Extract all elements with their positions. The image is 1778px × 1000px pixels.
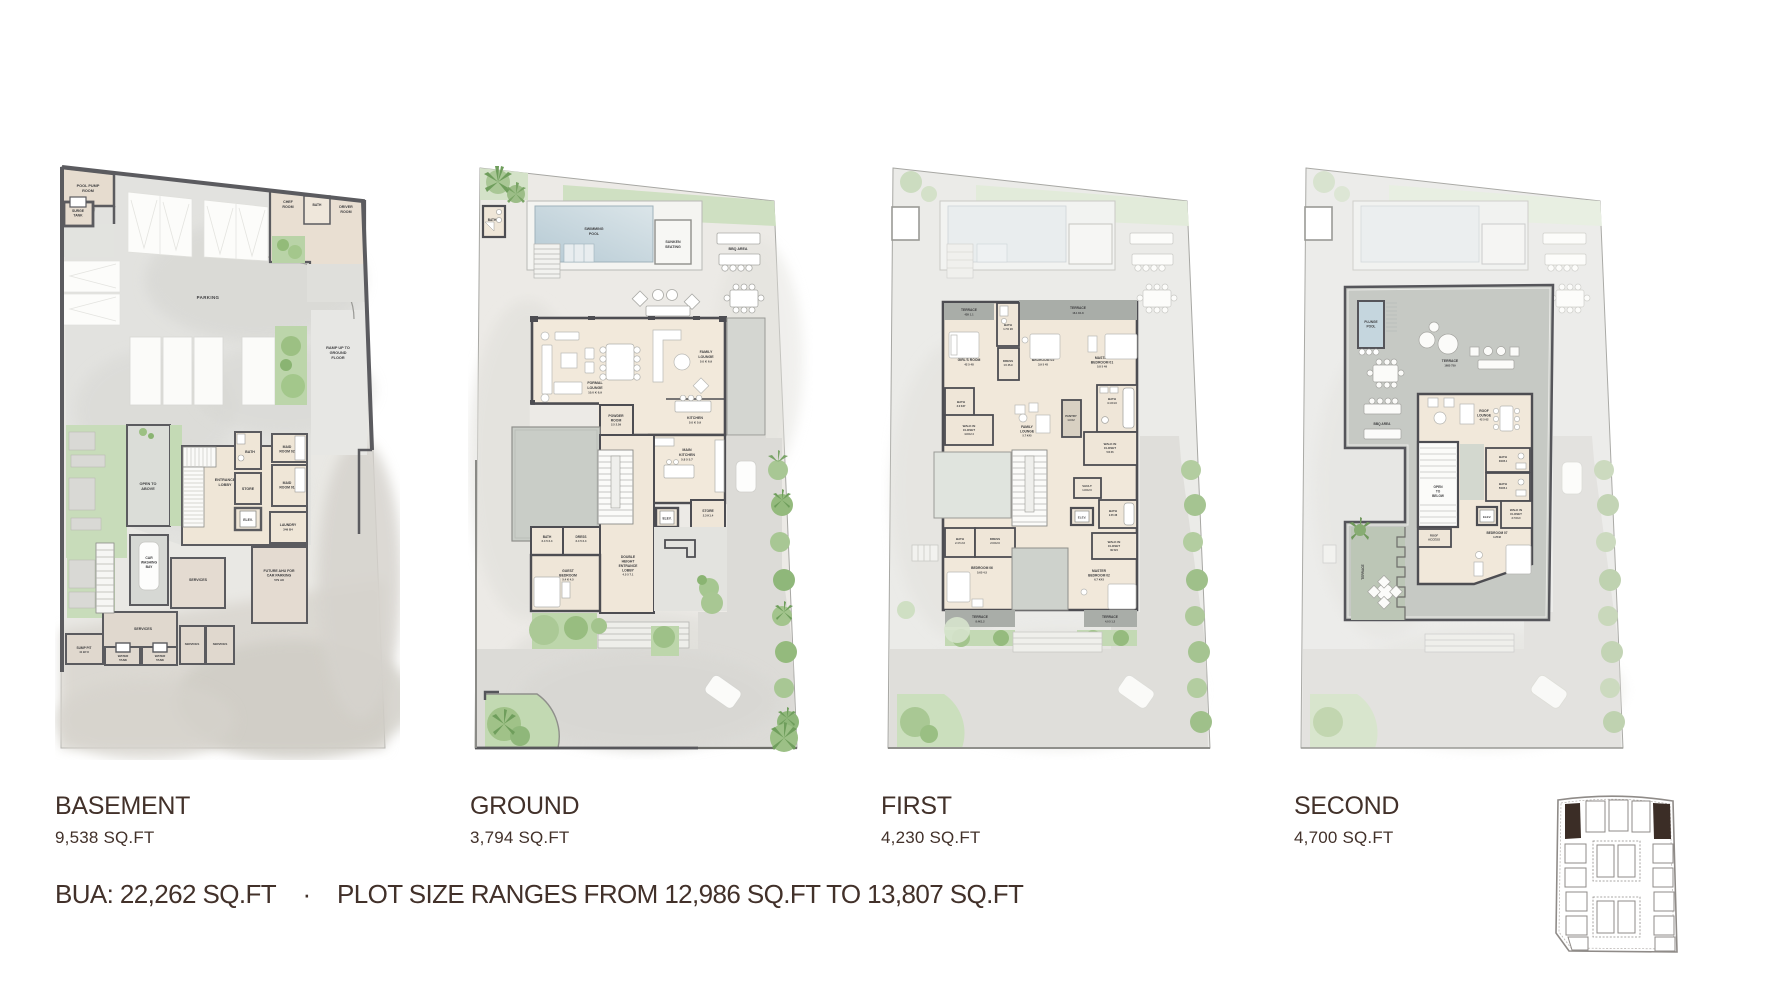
svg-text:CAR PARKING: CAR PARKING [267,574,292,578]
svg-text:5/185.1: 5/185.1 [1499,487,1508,490]
svg-text:ROOM: ROOM [82,189,94,193]
svg-text:ACCESS: ACCESS [1428,538,1440,542]
svg-text:42K 1.1: 42K 1.1 [964,313,974,317]
svg-text:KITCHEN: KITCHEN [687,416,703,420]
svg-text:1.5 45.9: 1.5 45.9 [1003,364,1013,367]
svg-text:SERVICES: SERVICES [134,627,153,631]
svg-text:TERRACE: TERRACE [1070,306,1087,310]
svg-text:RAMP UP TO: RAMP UP TO [326,346,350,350]
svg-text:GROUND: GROUND [330,351,347,355]
svg-text:SERVICES: SERVICES [185,642,200,646]
svg-text:SURGE: SURGE [72,209,85,213]
svg-text:5.4 K 4.5: 5.4 K 4.5 [562,578,574,582]
svg-text:BATH: BATH [245,450,255,454]
svg-text:POOL: POOL [1366,325,1375,329]
svg-text:BATH: BATH [1499,455,1507,459]
svg-text:LOUNGE: LOUNGE [1020,430,1035,434]
svg-text:41 B7.8: 41 B7.8 [79,650,89,654]
svg-text:ENTRANCE: ENTRANCE [619,564,639,568]
svg-text:5.7 K45: 5.7 K45 [1022,434,1032,438]
svg-text:2.4 5 2.4: 2.4 5 2.4 [542,539,553,543]
svg-text:BAY: BAY [146,565,154,569]
svg-text:CLOSET: CLOSET [1104,446,1116,450]
svg-text:5.65 4.5: 5.65 4.5 [977,571,988,575]
svg-text:BATH: BATH [313,203,323,207]
svg-text:3.1 K4.6: 3.1 K4.6 [1107,402,1117,405]
svg-text:STORE: STORE [242,487,255,491]
svg-text:GUEST: GUEST [562,569,575,573]
svg-text:3.7 K3.0: 3.7 K3.0 [1511,517,1521,520]
svg-text:42 5 62: 42 5 62 [1480,418,1489,422]
svg-text:VAULT: VAULT [1082,484,1092,488]
svg-text:3.0 K37: 3.0 K37 [957,405,966,408]
svg-text:TO: TO [1436,490,1441,494]
svg-text:CLOSET: CLOSET [963,428,975,432]
svg-text:ROOM: ROOM [340,210,351,214]
svg-text:CLOSET: CLOSET [1510,512,1522,516]
svg-text:DRIVER: DRIVER [339,205,353,209]
svg-text:POWDER: POWDER [608,414,624,418]
svg-text:BATH: BATH [1109,509,1117,513]
svg-text:TERRACE: TERRACE [961,308,978,312]
svg-text:BEDROOM 06: BEDROOM 06 [971,566,993,570]
svg-text:1.8 K2.0: 1.8 K2.0 [1082,489,1092,492]
svg-text:42 5 48: 42 5 48 [964,363,974,367]
svg-text:BELOW: BELOW [1432,494,1444,498]
svg-text:39 524: 39 524 [1110,549,1118,552]
svg-text:MAID: MAID [283,445,292,449]
svg-text:HEIGHT: HEIGHT [622,560,636,564]
svg-text:2.3 K1.4: 2.3 K1.4 [703,514,714,518]
svg-text:1.0 K2: 1.0 K2 [1067,419,1075,422]
svg-text:SERVICES: SERVICES [189,578,208,582]
svg-text:3/185.1: 3/185.1 [1499,460,1508,463]
svg-text:1685 759: 1685 759 [1444,364,1456,368]
svg-text:5.8 5 49: 5.8 5 49 [1097,365,1108,369]
svg-text:POOL PUMP: POOL PUMP [77,184,100,188]
svg-text:PANTRY: PANTRY [1065,414,1077,418]
svg-text:TERRACE: TERRACE [972,615,989,619]
svg-text:TANK: TANK [119,658,128,662]
svg-text:BBQ AREA: BBQ AREA [1374,422,1392,426]
svg-text:579 A8: 579 A8 [274,578,284,582]
svg-text:BATH: BATH [488,218,497,222]
svg-text:4.0 5 1.2: 4.0 5 1.2 [1105,620,1116,624]
svg-text:MASTER: MASTER [1092,569,1107,573]
svg-text:TANK: TANK [73,214,83,218]
svg-text:ELEV.: ELEV. [243,518,253,522]
svg-text:OPEN: OPEN [1433,485,1443,489]
svg-text:MAIN: MAIN [682,448,692,452]
svg-text:BATH: BATH [1108,397,1116,401]
svg-text:4.5 5 7.1: 4.5 5 7.1 [623,573,634,577]
svg-text:PLUNGE: PLUNGE [1364,320,1377,324]
svg-text:ENTRANCE: ENTRANCE [215,478,236,482]
svg-text:8.4K1.2: 8.4K1.2 [975,620,985,624]
svg-text:16.1 K1.8: 16.1 K1.8 [1072,311,1084,315]
svg-text:1.7 K 28: 1.7 K 28 [1003,328,1013,331]
svg-text:LOUNGE: LOUNGE [698,355,714,359]
svg-text:BATH: BATH [957,400,965,404]
svg-text:6.7 K43: 6.7 K43 [1094,578,1104,582]
svg-text:STORE: STORE [702,509,714,513]
svg-text:KITCHEN: KITCHEN [679,453,695,457]
svg-text:BATH: BATH [1499,482,1507,486]
svg-text:2.5 2.59: 2.5 2.59 [611,423,622,427]
svg-text:FAMILY: FAMILY [1021,425,1034,429]
svg-text:POOL: POOL [589,232,600,236]
svg-text:LOBBY: LOBBY [219,483,232,487]
svg-text:349 B4: 349 B4 [283,528,293,532]
svg-text:ELEV.: ELEV. [663,517,672,521]
svg-text:5/4 36: 5/4 36 [1107,451,1115,454]
svg-text:LAUNDRY: LAUNDRY [280,523,297,527]
svg-text:4.2542: 4.2542 [1493,535,1501,539]
svg-text:BATH: BATH [956,537,964,541]
svg-text:FAMILY: FAMILY [700,350,713,354]
svg-text:WASHING: WASHING [141,561,158,565]
svg-text:CLOSET: CLOSET [1108,544,1120,548]
svg-text:SUNKEN: SUNKEN [665,240,681,244]
svg-text:2.4 5 2.4: 2.4 5 2.4 [576,539,587,543]
svg-text:ROOM 01: ROOM 01 [279,486,294,490]
svg-text:2.4 5 2.6: 2.4 5 2.6 [955,542,965,545]
svg-text:SERVICES: SERVICES [213,642,228,646]
svg-text:LOUNGE: LOUNGE [587,386,603,390]
svg-text:4.8 K2.4: 4.8 K2.4 [964,433,974,436]
svg-text:TERRACE: TERRACE [1361,564,1365,579]
svg-text:2.45 38: 2.45 38 [1109,514,1118,517]
svg-text:5.0 K 6.9: 5.0 K 6.9 [700,360,713,364]
svg-text:ROOM: ROOM [282,205,293,209]
svg-text:OPEN TO: OPEN TO [139,482,156,486]
svg-text:TERRACE: TERRACE [1102,615,1119,619]
svg-text:ROOF: ROOF [1479,409,1489,413]
svg-text:TERRACE: TERRACE [1442,359,1459,363]
svg-text:DRESS: DRESS [990,537,1000,541]
svg-text:CAR: CAR [145,556,153,560]
svg-text:FUTURE AHU FOR: FUTURE AHU FOR [264,569,295,573]
svg-text:TANK: TANK [156,658,165,662]
svg-text:2.6 K2.6: 2.6 K2.6 [990,542,1000,545]
svg-text:10.0 K 6.9: 10.0 K 6.9 [588,391,602,395]
svg-text:ABOVE: ABOVE [141,487,155,491]
svg-text:LOUNGE: LOUNGE [1477,414,1492,418]
svg-text:5.8 5 5.7: 5.8 5 5.7 [681,458,693,462]
svg-text:CHEF: CHEF [283,200,294,204]
svg-text:DOUBLE: DOUBLE [621,555,636,559]
svg-text:MAID: MAID [283,481,292,485]
svg-text:ELEV.: ELEV. [1078,516,1087,520]
svg-text:SWIMMING: SWIMMING [584,227,603,231]
svg-text:ELEV.: ELEV. [1483,515,1491,519]
svg-text:BEDROOM 07: BEDROOM 07 [1486,531,1507,535]
svg-text:5.0 K 5.9: 5.0 K 5.9 [689,421,702,425]
svg-text:SUMP PIT: SUMP PIT [77,646,92,650]
svg-text:ROOM 02: ROOM 02 [279,450,294,454]
svg-text:FLOOR: FLOOR [331,356,345,360]
svg-text:3.9 5 45: 3.9 5 45 [1038,363,1049,367]
svg-text:GIRL'S ROOM: GIRL'S ROOM [958,358,981,362]
svg-text:PARKING: PARKING [197,295,220,300]
svg-text:FORMAL: FORMAL [587,381,603,385]
svg-text:DRESS: DRESS [1003,359,1013,363]
svg-text:BBQ AREA: BBQ AREA [728,247,747,251]
svg-text:SEATING: SEATING [665,245,681,249]
